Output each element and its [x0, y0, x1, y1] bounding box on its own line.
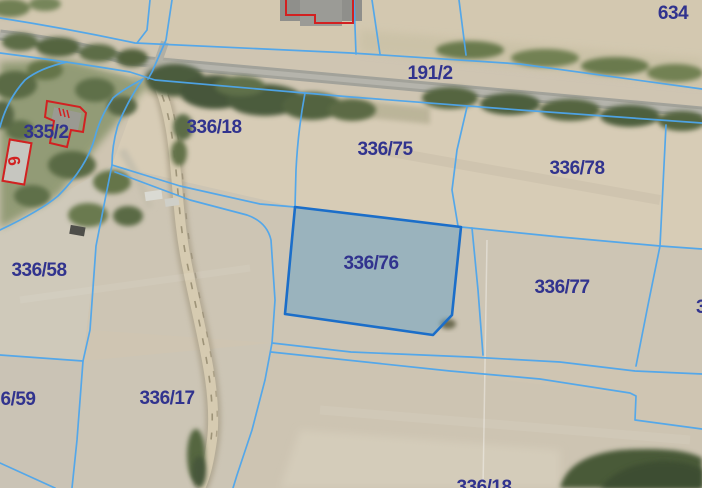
parcel-label-634: 634	[658, 3, 688, 25]
parcel-label-336-75: 336/75	[357, 139, 412, 161]
parcel-label-335-2: 335/2	[23, 122, 68, 144]
cadastral-map-viewport[interactable]: 335/2 9 336/18 191/2 634 336/75 336/78 3…	[0, 0, 702, 488]
parcel-label-right-clipped: 3	[696, 297, 702, 319]
parcel-label-191-2: 191/2	[407, 63, 452, 85]
map-layers	[0, 0, 702, 488]
parcel-label-336-17: 336/17	[139, 388, 194, 410]
parcel-label-336-18-bottom: 336/18	[456, 477, 511, 488]
parcel-label-336-78: 336/78	[549, 158, 604, 180]
parcel-label-336-76: 336/76	[343, 253, 398, 275]
parcel-label-336-18: 336/18	[186, 117, 241, 139]
parcel-label-336-58: 336/58	[11, 260, 66, 282]
parcel-label-336-59-clipped: 6/59	[1, 389, 36, 411]
parcel-label-336-77: 336/77	[534, 277, 589, 299]
